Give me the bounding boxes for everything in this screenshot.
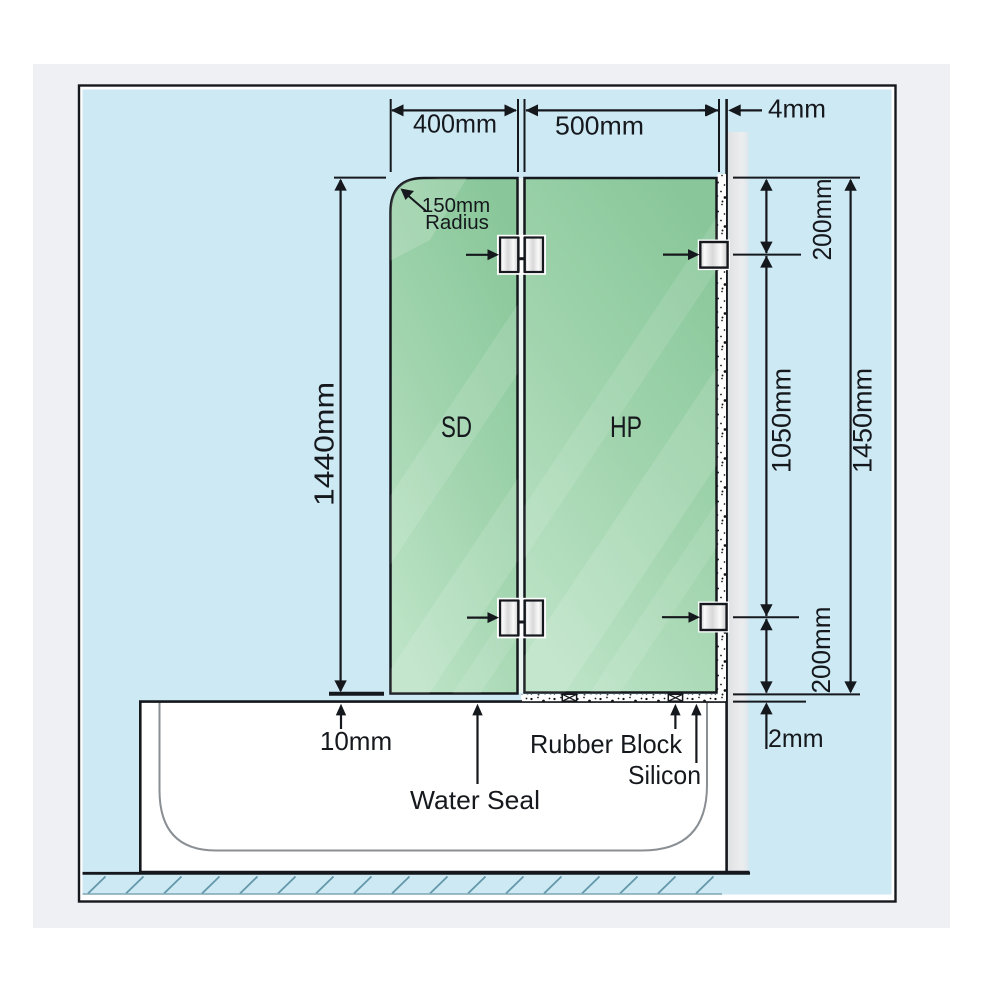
- svg-text:Silicon: Silicon: [628, 760, 701, 790]
- svg-text:10mm: 10mm: [320, 726, 392, 756]
- svg-text:Rubber Block: Rubber Block: [530, 729, 683, 759]
- svg-text:200mm: 200mm: [806, 607, 836, 694]
- svg-text:SD: SD: [441, 411, 472, 444]
- svg-text:Radius: Radius: [425, 211, 489, 234]
- svg-text:HP: HP: [610, 411, 642, 444]
- svg-text:500mm: 500mm: [555, 111, 644, 141]
- svg-text:200mm: 200mm: [807, 179, 837, 261]
- svg-text:1440mm: 1440mm: [309, 382, 340, 506]
- svg-text:2mm: 2mm: [768, 725, 824, 753]
- svg-text:1050mm: 1050mm: [767, 368, 797, 473]
- svg-text:1450mm: 1450mm: [848, 368, 878, 473]
- svg-text:400mm: 400mm: [413, 109, 497, 139]
- svg-text:Water Seal: Water Seal: [410, 785, 540, 815]
- svg-text:4mm: 4mm: [768, 94, 826, 124]
